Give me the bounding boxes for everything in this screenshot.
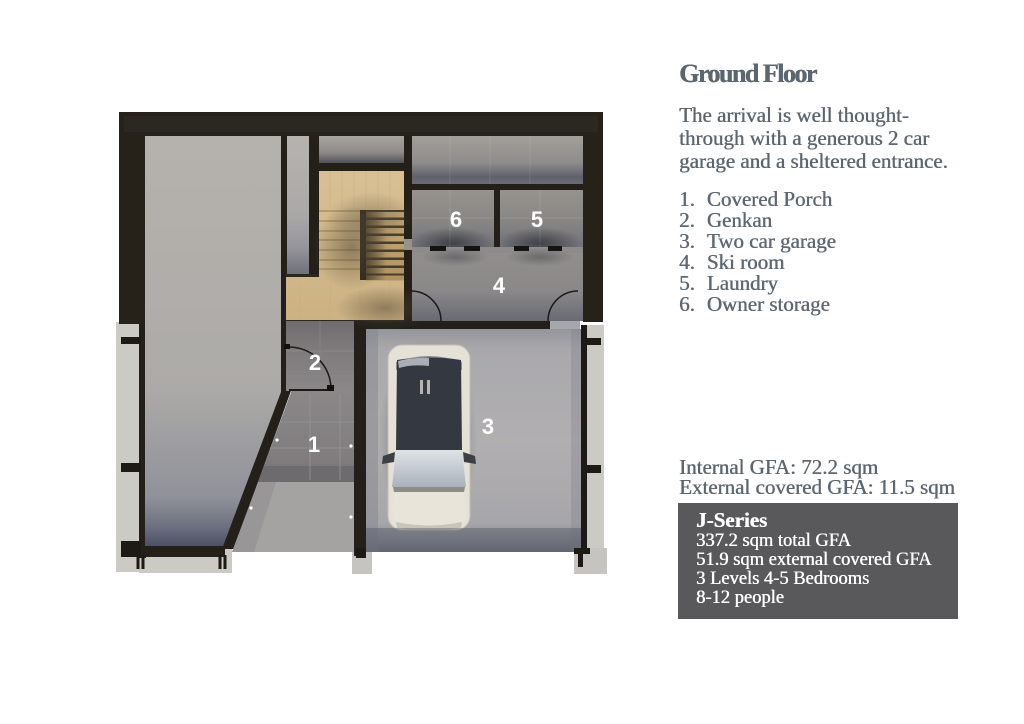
svg-text:1: 1 [308,432,320,457]
svg-text:2: 2 [309,350,321,375]
svg-text:6: 6 [450,207,462,232]
svg-text:4: 4 [493,273,506,298]
svg-text:3: 3 [482,414,494,439]
svg-text:5: 5 [531,207,543,232]
